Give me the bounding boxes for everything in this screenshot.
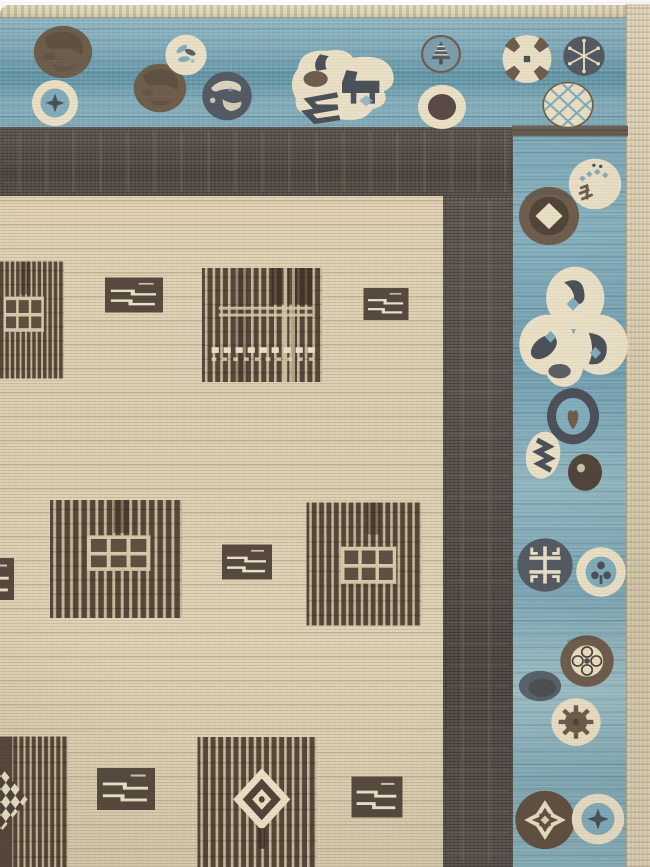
medallion-pinecone: [422, 36, 460, 72]
rug-motif-layer: [0, 0, 650, 867]
medallion-star-ring: [572, 794, 624, 845]
medallion-horse-cluster: [292, 50, 394, 122]
medallion-shou-coin: [517, 538, 572, 591]
field-square-diamond: [198, 737, 317, 867]
field-rect-dash: [364, 288, 409, 320]
field-square-window: [307, 503, 422, 626]
field-square-checker-partial: [0, 737, 68, 867]
field-square-plaid: [202, 268, 322, 382]
field-rect-dash: [352, 777, 403, 818]
medallion-brown-disc: [34, 26, 92, 78]
medallion-ringed-disc: [418, 85, 466, 129]
medallion-coin-dots: [569, 159, 621, 210]
field-rect-dash: [0, 558, 14, 600]
medallion-ring-trefoil: [576, 547, 626, 597]
medallion-gear-coin: [551, 698, 600, 746]
medallion-snowflake: [563, 36, 604, 76]
medallion-star-ring: [32, 80, 78, 126]
medallion-trilobe: [519, 267, 628, 387]
field-rect-dash: [105, 278, 163, 313]
field-rect-dash: [222, 545, 272, 580]
medallion-arrows: [515, 791, 574, 849]
field-rect-dash: [97, 768, 155, 810]
medallion-gray-blob: [519, 671, 561, 701]
field-square-window: [50, 500, 182, 618]
medallion-leaf-coin: [165, 35, 206, 75]
field-square-window-partial: [0, 262, 64, 379]
medallion-diamond-coin: [519, 187, 579, 245]
medallion-heart-cluster: [521, 388, 602, 491]
medallion-quatrefoil-ring: [560, 635, 613, 687]
medallion-globe: [202, 72, 252, 121]
rug-photograph: [0, 0, 650, 867]
medallion-cross: [503, 35, 552, 83]
